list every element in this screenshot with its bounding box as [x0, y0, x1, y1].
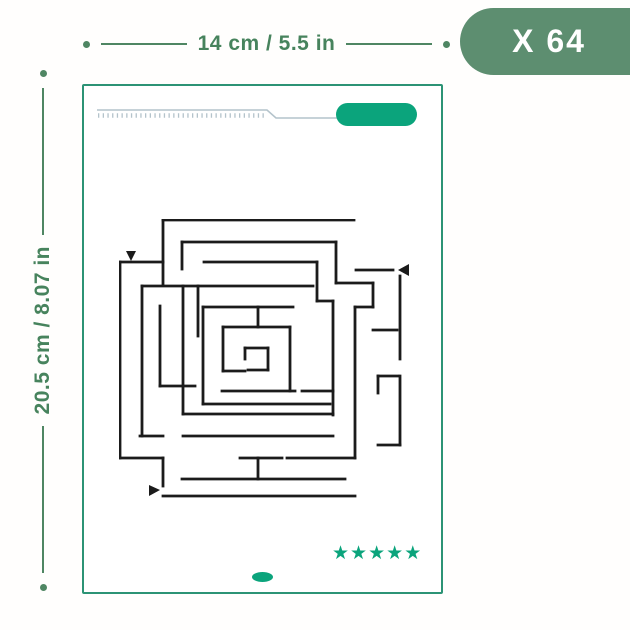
- dimension-line: [42, 426, 44, 573]
- height-dimension: 20.5 cm / 8.07 in: [29, 70, 57, 591]
- star-icon: ★: [404, 544, 421, 563]
- height-dimension-label: 20.5 cm / 8.07 in: [31, 246, 55, 414]
- dimension-dot: [40, 584, 47, 591]
- quantity-badge-label: X 64: [512, 23, 586, 60]
- difficulty-stars: ★★★★★: [332, 544, 421, 563]
- title-pill: [336, 103, 417, 126]
- maze-entry-arrow-down: [126, 251, 136, 261]
- quantity-badge: X 64: [460, 8, 630, 75]
- width-dimension-label: 14 cm / 5.5 in: [198, 32, 336, 56]
- dimension-dot: [40, 70, 47, 77]
- product-infographic: 14 cm / 5.5 in 20.5 cm / 8.07 in X 64 ★★…: [0, 0, 630, 630]
- maze-exit-arrow-right: [149, 485, 160, 496]
- dimension-dot: [443, 41, 450, 48]
- maze-puzzle: [119, 219, 413, 501]
- star-icon: ★: [350, 544, 367, 563]
- dimension-dot: [83, 41, 90, 48]
- maze-card: ★★★★★: [82, 84, 443, 594]
- dimension-line: [42, 88, 44, 235]
- bottom-oval: [252, 572, 273, 582]
- dimension-line: [346, 43, 432, 45]
- perforation-ruler: [95, 106, 343, 124]
- maze-side-arrow-left: [398, 264, 409, 276]
- star-icon: ★: [386, 544, 403, 563]
- dimension-line: [101, 43, 187, 45]
- star-icon: ★: [332, 544, 349, 563]
- star-icon: ★: [368, 544, 385, 563]
- width-dimension: 14 cm / 5.5 in: [83, 30, 450, 58]
